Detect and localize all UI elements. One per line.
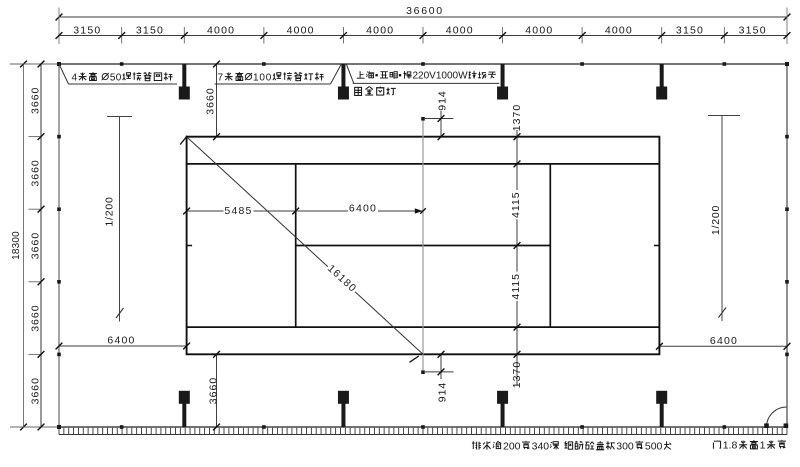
svg-text:1370: 1370: [511, 361, 523, 388]
svg-text:3660: 3660: [208, 377, 220, 404]
svg-text:3150: 3150: [676, 25, 704, 37]
svg-text:4000: 4000: [366, 25, 394, 37]
svg-text:3150: 3150: [73, 25, 101, 37]
svg-text:1370: 1370: [511, 104, 523, 131]
svg-text:4115: 4115: [510, 273, 522, 300]
svg-text:4000: 4000: [207, 25, 235, 37]
svg-text:4000: 4000: [287, 25, 315, 37]
svg-text:6400: 6400: [349, 203, 377, 215]
svg-text:18300: 18300: [11, 231, 22, 260]
svg-text:3660: 3660: [30, 87, 42, 114]
svg-text:1: 1: [760, 440, 766, 452]
svg-text:3660: 3660: [30, 159, 42, 186]
svg-text:500: 500: [645, 440, 663, 452]
svg-text:4000: 4000: [446, 25, 474, 37]
svg-text:6400: 6400: [710, 335, 738, 347]
svg-text:6400: 6400: [107, 335, 135, 347]
svg-text:3660: 3660: [30, 304, 42, 331]
svg-text:3660: 3660: [30, 377, 42, 404]
svg-text:4000: 4000: [605, 25, 633, 37]
svg-text:300: 300: [616, 440, 634, 452]
svg-text:3150: 3150: [739, 25, 767, 37]
svg-text:1/200: 1/200: [710, 205, 722, 235]
svg-text:3150: 3150: [136, 25, 164, 37]
svg-text:3660: 3660: [205, 87, 217, 114]
svg-text:200: 200: [503, 440, 521, 452]
svg-text:5485: 5485: [224, 205, 252, 217]
svg-text:914: 914: [437, 382, 449, 403]
svg-text:3660: 3660: [30, 232, 42, 259]
svg-text:4000: 4000: [525, 25, 553, 37]
svg-text:914: 914: [437, 90, 449, 111]
svg-text:4115: 4115: [510, 191, 522, 218]
svg-text:7: 7: [218, 72, 224, 83]
svg-text:4: 4: [72, 72, 78, 83]
svg-text:50: 50: [110, 72, 122, 83]
svg-text:36600: 36600: [406, 5, 444, 17]
svg-text:100: 100: [253, 72, 272, 83]
svg-text:340: 340: [532, 440, 550, 452]
svg-text:1/200: 1/200: [104, 196, 116, 226]
svg-text:220V1000W: 220V1000W: [413, 71, 469, 82]
svg-text:1.8: 1.8: [723, 440, 738, 452]
